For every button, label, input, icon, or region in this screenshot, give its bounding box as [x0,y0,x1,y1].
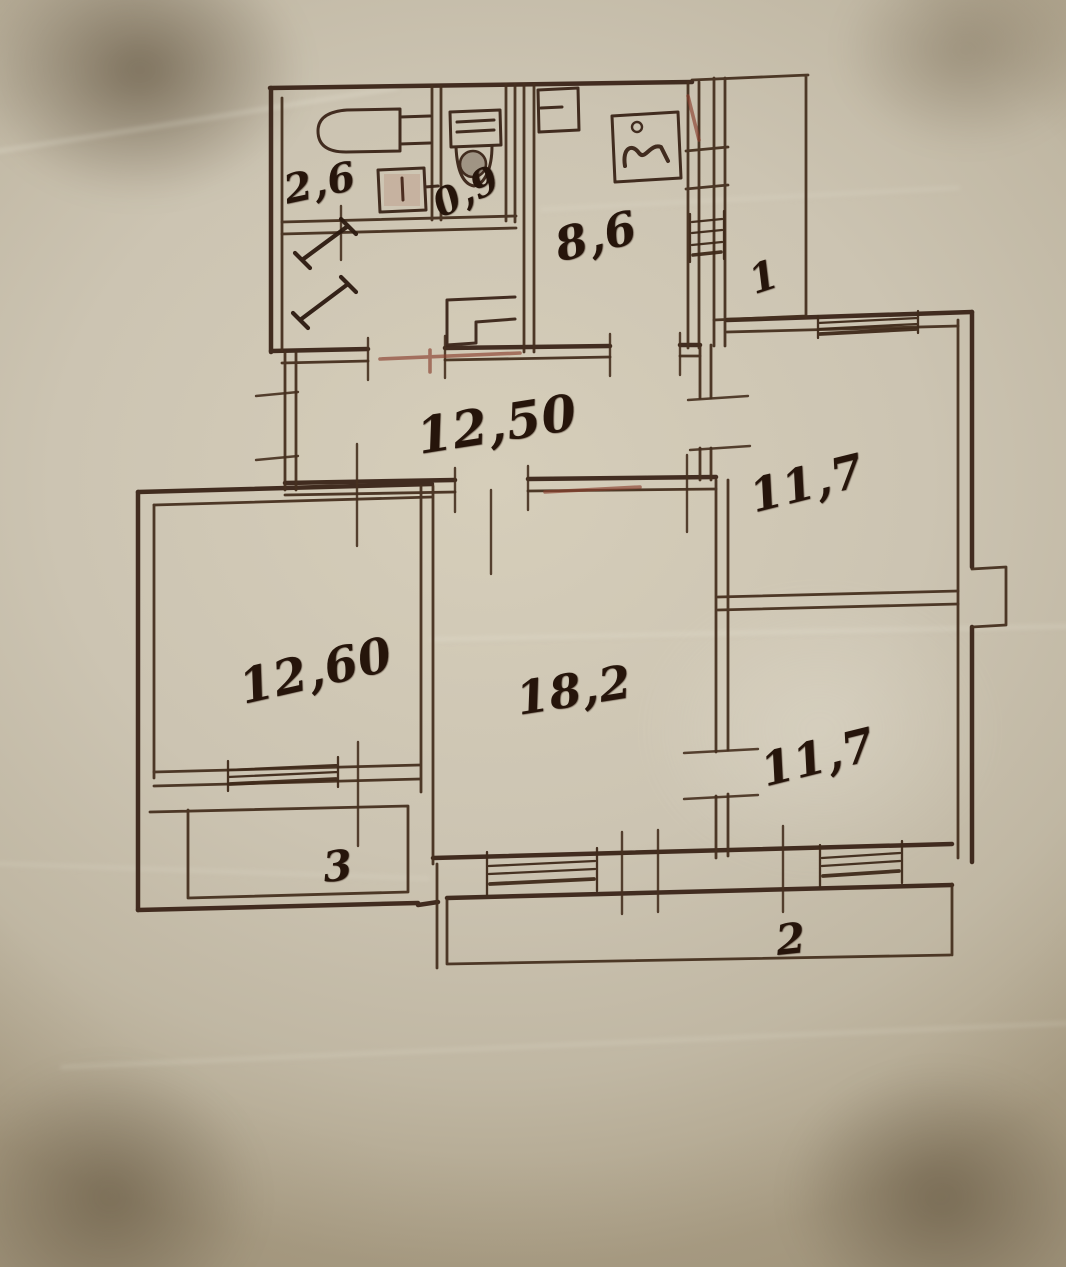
wall-segment [447,885,952,898]
stove-icon [612,112,681,182]
wall-notch [972,567,1006,627]
bathtub-icon [318,109,430,152]
duct-ticks [686,147,728,189]
toilet-tank-icon [450,110,501,147]
wall-segment [285,477,716,483]
floor-plan-photo: 2,6 0,9 8,6 12,50 11,7 12,60 18,2 11,7 1… [0,0,1066,1267]
floor-plan-drawing [0,0,1066,1267]
door-tick-living [455,466,528,574]
stove-knob-icon [632,122,642,132]
wall-corridor-right [700,345,711,480]
wall-segment [138,903,418,910]
window-icon [228,757,338,791]
window-sill [490,879,594,884]
wall-wc-right [506,84,515,222]
door-tick-kitchen [610,333,680,376]
corridor-bottom-inner [285,489,716,495]
corridor-top-inner [282,356,700,363]
windows [228,211,918,895]
wall-between-right-rooms [718,591,958,610]
corridor-left-wall [285,352,296,490]
label-balcony-2: 2 [773,913,808,965]
closet-niche-outline [447,297,515,345]
wall-segment [271,345,700,351]
wall-living-right [716,480,728,858]
balcony-left-outline [150,806,408,898]
wall-segment [418,902,438,905]
wall-segment [154,497,432,505]
window-sill [230,779,336,784]
wall-segment [433,844,952,858]
door-tick-balcony-bottom [622,830,658,914]
door-tick-room-bottom-right [684,749,758,799]
dimension-ticks [256,392,298,460]
balcony-door-sill [693,252,721,255]
wall-segment [270,82,692,88]
entrance-hatch [295,219,356,268]
inner-walls [150,75,1006,968]
wall-hall-kitchen [524,84,534,352]
label-balcony-3: 3 [320,840,355,892]
wall-left-living [421,486,437,968]
stove-burner-squiggle [624,146,668,166]
vent-box-icon [538,88,579,132]
red-trace [688,96,699,140]
window-sill [823,871,899,876]
entrance-hatch [293,277,356,328]
door-tick-room-top-right [688,396,750,450]
entrance-door-marks [293,219,356,328]
red-smudge [384,174,420,206]
wall-bathroom-bottom [282,216,516,234]
